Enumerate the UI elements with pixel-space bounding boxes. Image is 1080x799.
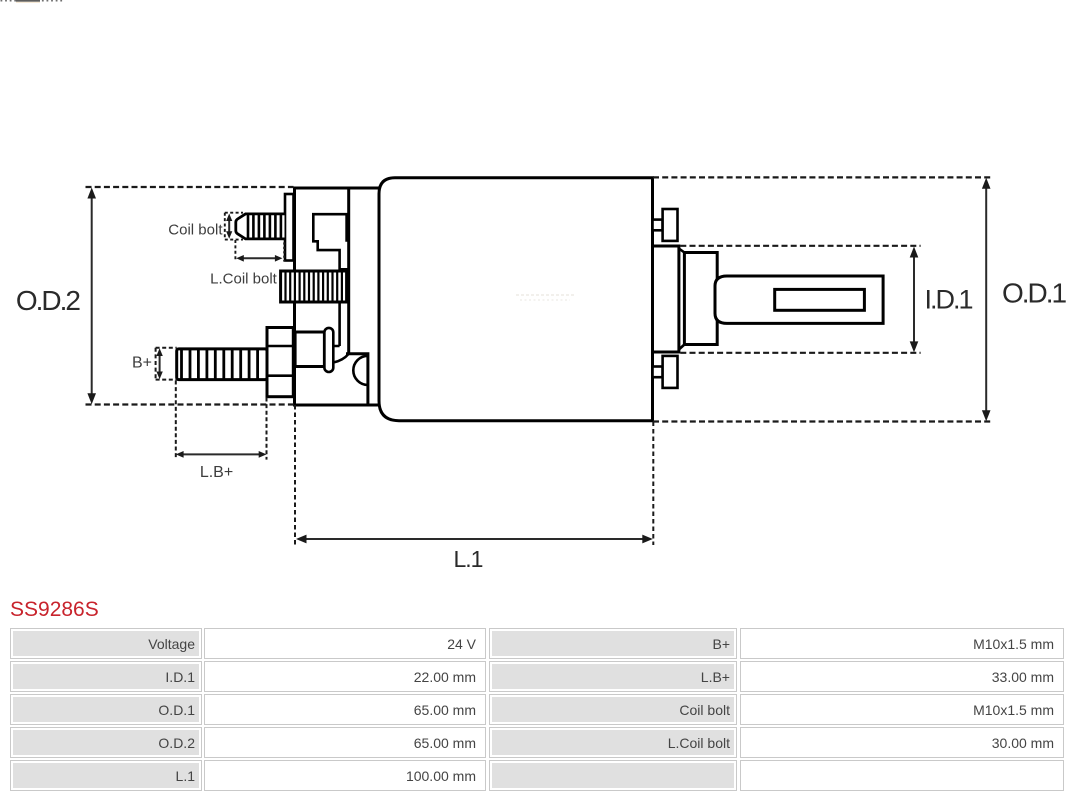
svg-text:L.1: L.1 xyxy=(454,546,483,572)
svg-text:Coil bolt: Coil bolt xyxy=(168,222,223,239)
svg-text:I.D.1: I.D.1 xyxy=(925,285,973,315)
svg-text:O.D.2: O.D.2 xyxy=(16,285,81,316)
svg-text:B+: B+ xyxy=(132,355,152,372)
svg-text:L.B+: L.B+ xyxy=(200,464,233,481)
svg-text:O.D.1: O.D.1 xyxy=(1002,278,1067,309)
svg-text:L.Coil bolt: L.Coil bolt xyxy=(210,271,278,288)
